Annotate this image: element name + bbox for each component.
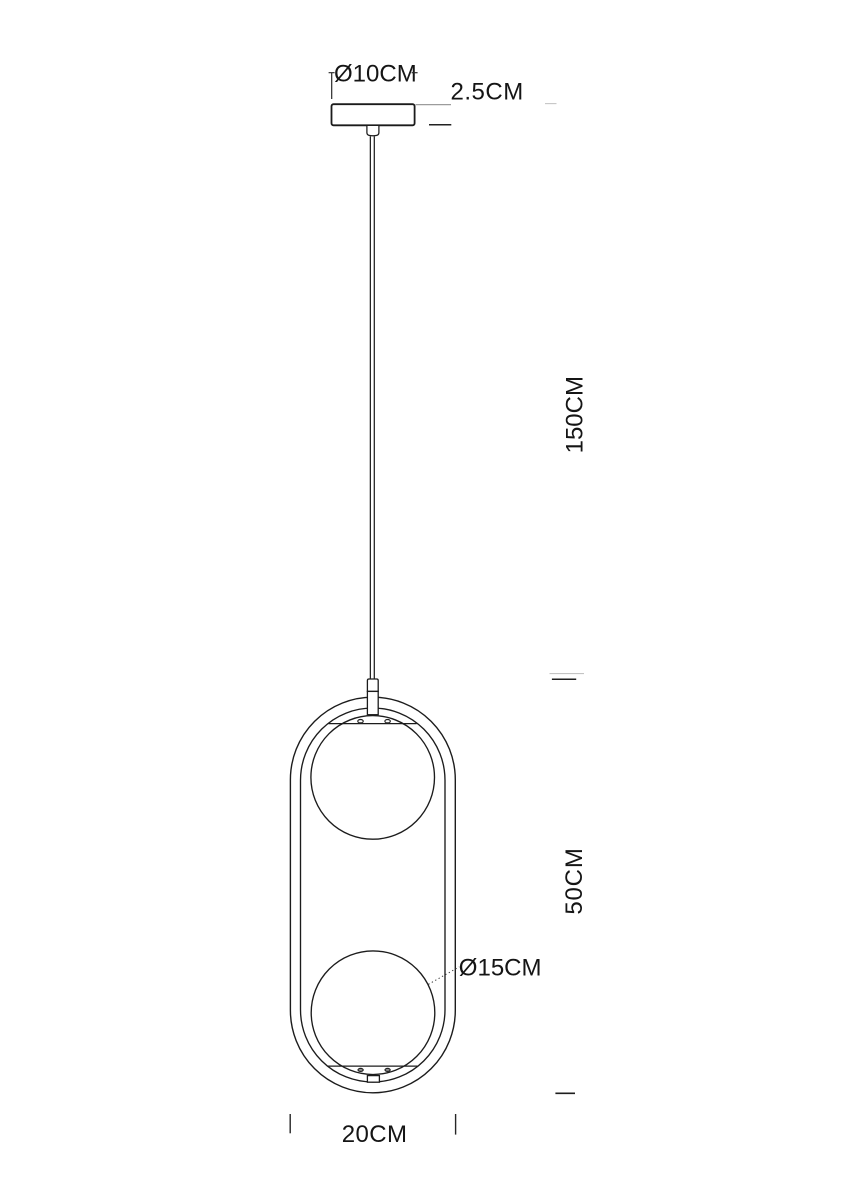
svg-text:150CM: 150CM: [562, 376, 589, 453]
svg-text:50CM: 50CM: [561, 847, 588, 914]
svg-text:Ø10CM: Ø10CM: [334, 61, 417, 88]
svg-text:20CM: 20CM: [342, 1121, 408, 1148]
svg-text:Ø15CM: Ø15CM: [459, 955, 542, 982]
svg-text:2.5CM: 2.5CM: [451, 79, 524, 106]
